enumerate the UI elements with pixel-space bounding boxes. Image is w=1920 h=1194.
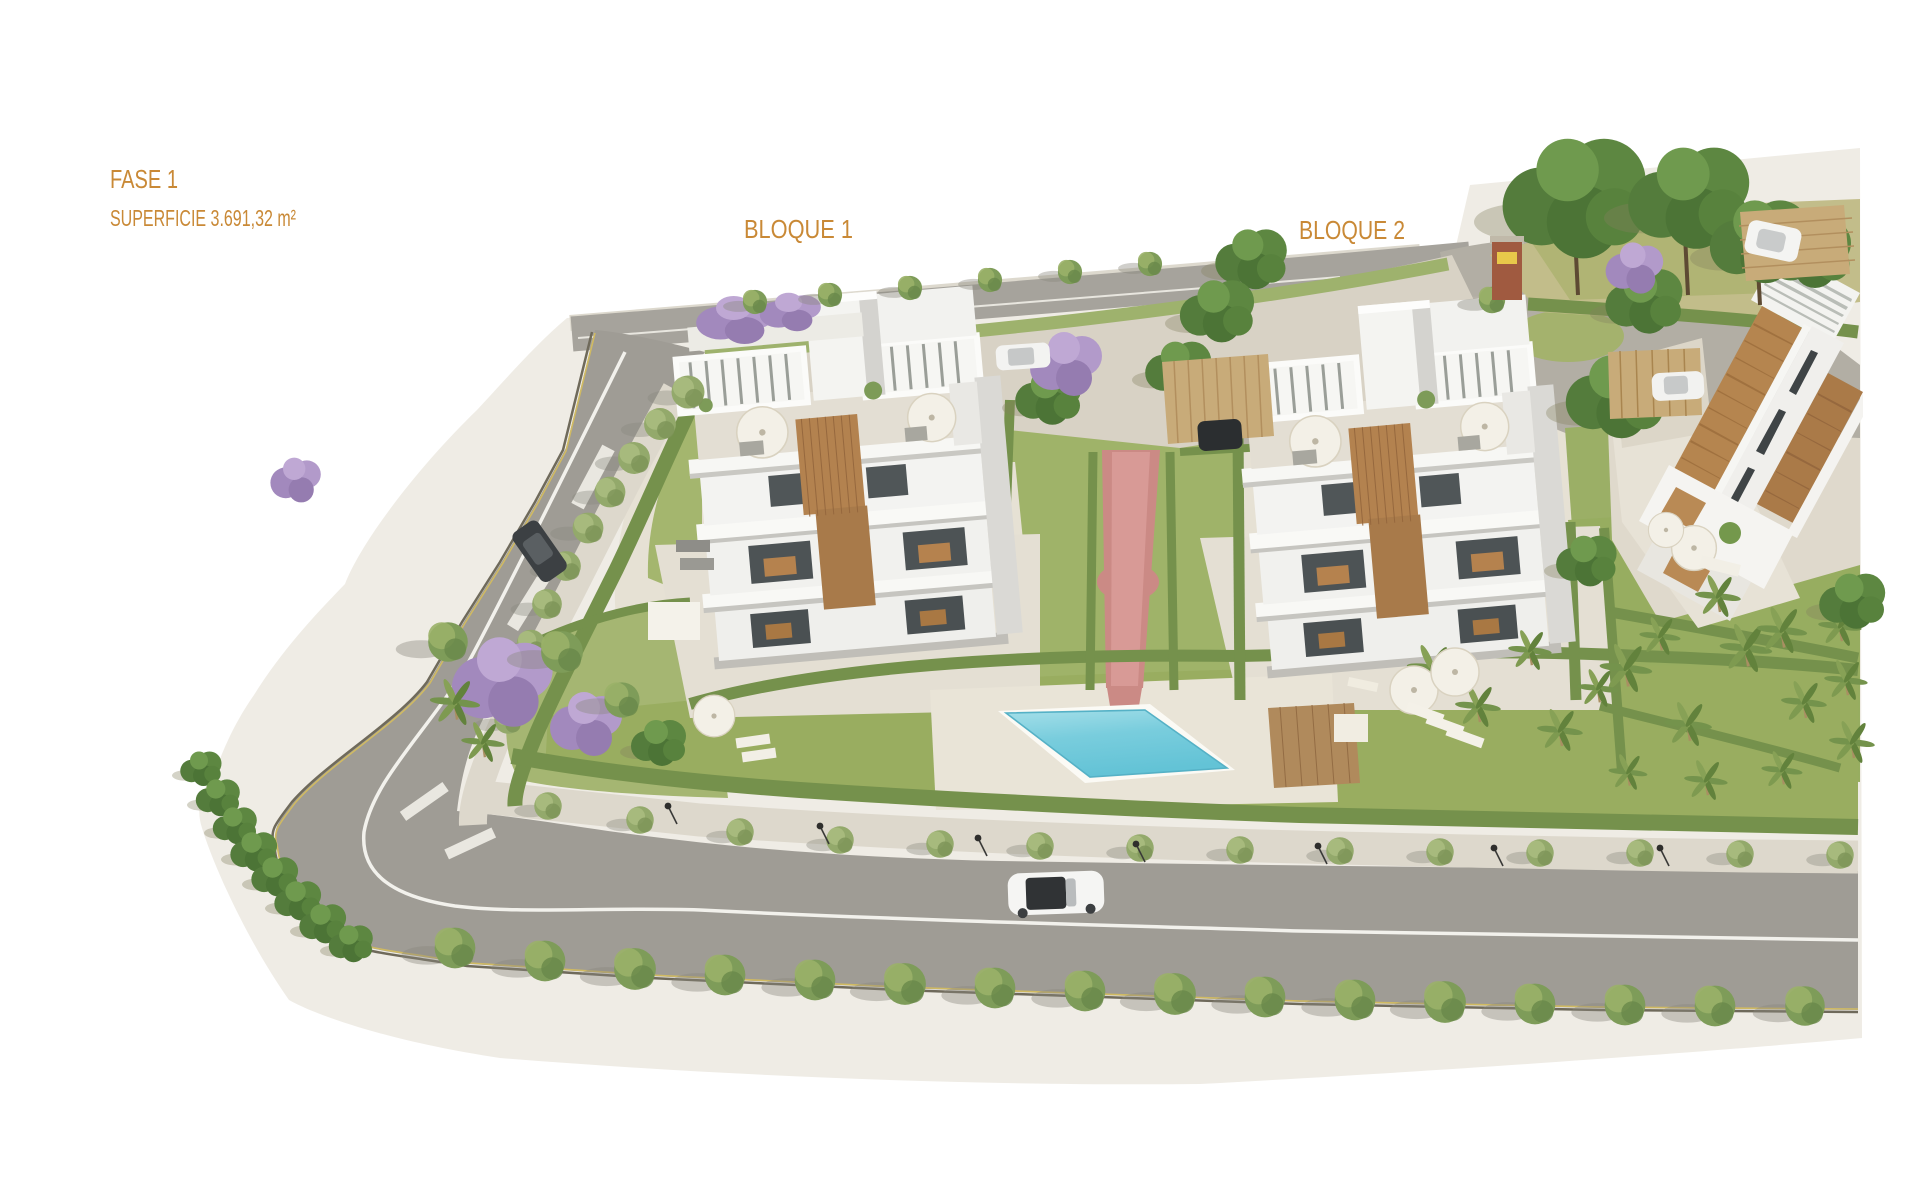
svg-text:BLOQUE 2: BLOQUE 2 xyxy=(1299,215,1405,245)
svg-text:FASE 1: FASE 1 xyxy=(110,164,178,194)
svg-text:SUPERFICIE 3.691,32 m²: SUPERFICIE 3.691,32 m² xyxy=(110,205,296,231)
svg-text:BLOQUE 1: BLOQUE 1 xyxy=(744,214,853,244)
